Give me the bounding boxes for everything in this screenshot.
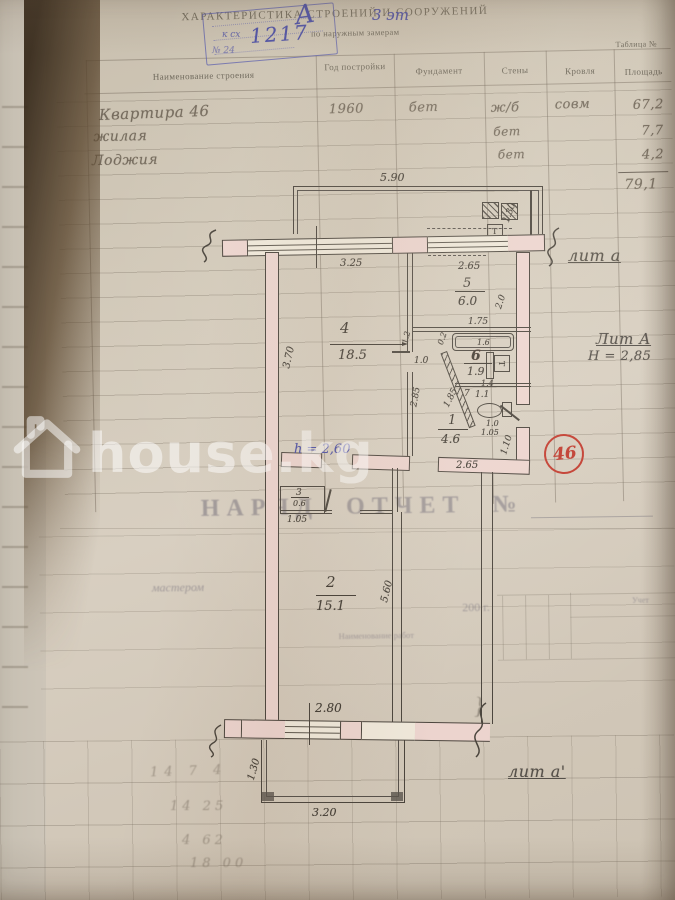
wall-break-symbol — [468, 702, 494, 758]
room2-area: 15.1 — [316, 599, 345, 614]
stamp-note2: № 24 — [212, 46, 235, 56]
dim-hall-w: 2.65 — [456, 460, 478, 471]
balcony-inner — [266, 740, 399, 797]
window-room4 — [248, 238, 317, 256]
liter-bottom: лит а' — [508, 762, 566, 781]
room2-bar — [316, 595, 356, 596]
stamp-floors: 3 эт — [372, 6, 409, 24]
kitchen-bath-wall — [413, 327, 531, 332]
toilet-bowl — [477, 403, 502, 418]
room4-dim-line — [330, 344, 404, 345]
room4-dim-arrow — [402, 342, 408, 346]
balcony-corner-shade — [391, 792, 403, 801]
stamp-layer: А 3 эт 1217 к сх № 24 — [0, 0, 675, 120]
room2-number: 2 — [326, 573, 336, 591]
dim-hall-h: 1.10 — [499, 434, 514, 456]
room1-area: 4.6 — [441, 432, 460, 446]
dim-room4-w: 3.25 — [340, 258, 362, 269]
dim-bath-w: 1.75 — [468, 317, 488, 327]
apartment-number: 46 — [552, 443, 578, 465]
wall-segment — [508, 234, 545, 252]
dim-closet: 1.05 — [287, 515, 307, 525]
top-exterior-wall — [207, 234, 560, 257]
dashed-overhang2 — [428, 255, 486, 256]
dim-room5-h: 2.0 — [494, 294, 508, 311]
door-stub — [392, 351, 410, 353]
dim-wc: 1.0 — [486, 419, 499, 428]
dim-door4: 1.0 — [414, 356, 428, 366]
wall-break-symbol — [203, 724, 227, 758]
room1-number: 1 — [448, 413, 456, 428]
room2-top-wall — [280, 510, 332, 514]
room2-right-wall — [392, 512, 402, 724]
room6-bar — [464, 363, 492, 364]
room5-number: 5 — [463, 276, 471, 291]
window-room5 — [428, 235, 508, 253]
apartment-number-badge: 46 — [542, 432, 586, 476]
room3-bar — [291, 497, 309, 498]
window-room2 — [285, 720, 340, 740]
liter-top: лит а — [568, 246, 621, 265]
watermark-text: house.kg — [88, 422, 374, 485]
dashed-overhang — [427, 228, 512, 229]
room7-area: 1.1 — [475, 390, 489, 400]
towel-unit-label2: Т — [497, 361, 506, 366]
stamp-note: к сх — [222, 30, 240, 40]
dim-room4-h: 3.70 — [281, 345, 297, 369]
room3-area: 0.6 — [293, 499, 306, 508]
dim-tub: 1.6 — [477, 338, 490, 347]
wall-segment — [242, 719, 285, 739]
watermark: house.kg — [4, 402, 364, 492]
wall-cap — [222, 239, 248, 256]
dim-room5-w: 2.65 — [458, 261, 480, 272]
closet-door-tick — [324, 489, 331, 512]
room6-number: 6 — [471, 348, 481, 364]
left-exterior-wall — [265, 252, 279, 738]
book-gutter-shadow — [24, 0, 100, 700]
room4-number: 4 — [340, 319, 350, 337]
room7-number: 7 — [464, 389, 470, 399]
room6-area: 1.9 — [467, 365, 485, 378]
dim-bath-gap: 0.2 — [436, 331, 449, 346]
house-icon — [8, 408, 86, 486]
dim-wc2: 1.05 — [481, 428, 499, 437]
dim-tick — [316, 226, 317, 268]
duct-box — [486, 352, 494, 379]
dim-balcony-w: 3.20 — [312, 806, 337, 819]
towel-unit-box2: Т — [494, 355, 510, 372]
bathtub: 1.6 — [452, 333, 514, 351]
room1-bar — [438, 429, 468, 430]
bath-wc-wall — [455, 383, 531, 387]
room5-area: 6.0 — [458, 294, 477, 308]
balcony-door — [362, 721, 415, 741]
balcony-corner-shade — [262, 792, 274, 801]
dim-tick — [309, 703, 310, 745]
building-right-wall-lower — [481, 472, 493, 724]
dim-balcony-h: 1.30 — [246, 757, 263, 781]
wall-break-symbol — [196, 229, 222, 263]
photo-of-tech-passport-page: ХАРАКТЕРИСТИКА СТРОЕНИЙ И СООРУЖЕНИЙ по … — [0, 0, 675, 900]
room4-area: 18.5 — [338, 348, 367, 363]
dim-hall-wall: 2.85 — [409, 386, 422, 407]
room4-right-wall-lower — [407, 372, 413, 456]
bottom-exterior-wall — [224, 719, 490, 740]
vent-shaft-box — [482, 202, 499, 219]
liter-main-height: Н = 2,85 — [588, 349, 651, 364]
room2-top-wall2 — [360, 510, 393, 514]
toilet-tank — [502, 402, 512, 417]
corridor-right-wall — [392, 468, 398, 512]
stamp-number: 1217 — [249, 20, 309, 48]
wall-pier — [340, 721, 362, 740]
room5-bar — [455, 291, 485, 292]
liter-main: Лит А — [596, 330, 651, 348]
window-room4b — [317, 237, 392, 255]
dim-room2-w: 2.80 — [315, 701, 342, 715]
wall-break-symbol — [541, 227, 567, 267]
wall-pier — [392, 236, 428, 254]
dim-loggia-top: 5.90 — [380, 171, 405, 184]
